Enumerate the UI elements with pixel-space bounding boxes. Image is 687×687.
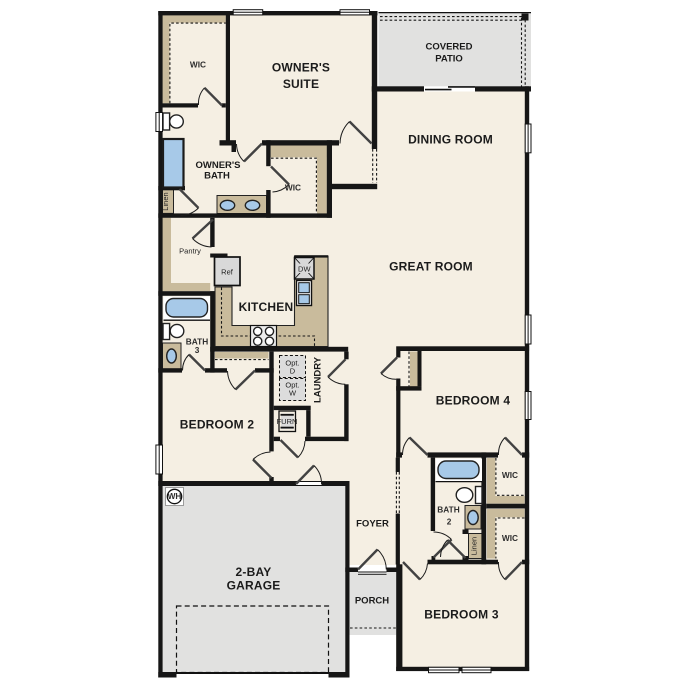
svg-text:PATIO: PATIO	[435, 54, 463, 65]
svg-text:BEDROOM 2: BEDROOM 2	[180, 418, 255, 432]
svg-text:2-BAY: 2-BAY	[236, 565, 272, 579]
svg-text:GARAGE: GARAGE	[227, 579, 281, 593]
svg-text:BATH: BATH	[204, 171, 230, 182]
svg-text:BEDROOM 4: BEDROOM 4	[436, 394, 511, 408]
svg-text:FOYER: FOYER	[356, 519, 389, 530]
svg-text:Linen: Linen	[470, 537, 479, 555]
svg-text:3: 3	[195, 345, 200, 355]
svg-text:BATH: BATH	[437, 505, 459, 515]
svg-text:D: D	[290, 366, 296, 375]
svg-text:DW: DW	[298, 264, 311, 273]
svg-text:WIC: WIC	[502, 470, 518, 480]
svg-text:Ref: Ref	[221, 268, 234, 277]
svg-text:KITCHEN: KITCHEN	[239, 300, 294, 314]
svg-text:PORCH: PORCH	[355, 596, 389, 607]
svg-text:WH: WH	[168, 491, 182, 501]
svg-text:LAUNDRY: LAUNDRY	[313, 356, 324, 403]
svg-text:2: 2	[447, 517, 452, 527]
svg-text:SUITE: SUITE	[283, 77, 319, 91]
svg-text:FURN: FURN	[277, 417, 298, 426]
svg-text:Linen: Linen	[161, 192, 170, 210]
svg-text:Pantry: Pantry	[179, 247, 201, 256]
svg-text:WIC: WIC	[285, 183, 301, 193]
svg-text:OWNER'S: OWNER'S	[195, 160, 240, 171]
svg-text:GREAT ROOM: GREAT ROOM	[389, 260, 473, 274]
svg-text:DINING ROOM: DINING ROOM	[408, 133, 493, 147]
svg-text:WIC: WIC	[502, 533, 518, 543]
svg-text:WIC: WIC	[190, 60, 206, 70]
svg-text:W: W	[289, 388, 297, 397]
svg-text:COVERED: COVERED	[426, 42, 473, 53]
svg-text:OWNER'S: OWNER'S	[272, 61, 330, 75]
svg-text:BEDROOM 3: BEDROOM 3	[424, 608, 499, 622]
